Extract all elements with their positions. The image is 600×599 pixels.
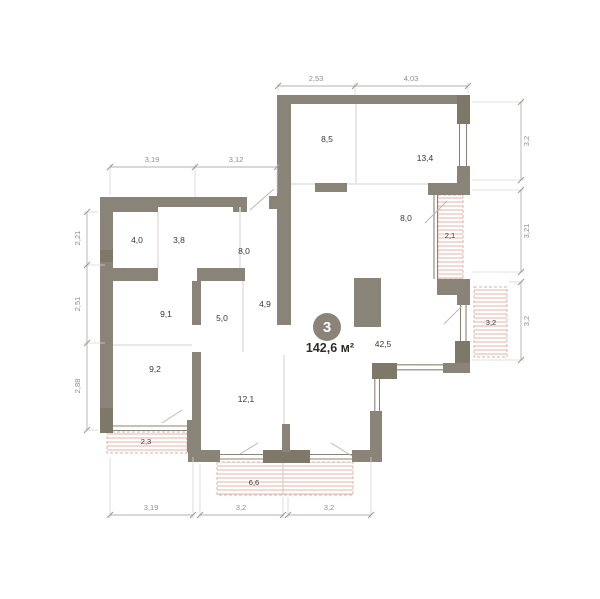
dim-top-1: 2,53 (309, 74, 324, 83)
dim-upperleft-1: 3,19 (145, 155, 160, 164)
dim-bottom-1: 3,19 (144, 503, 159, 512)
balcony-6-6-hatch (217, 462, 353, 495)
room-label-4-9: 4,9 (259, 299, 271, 309)
room-label-3-8: 3,8 (173, 235, 185, 245)
room-label-9-2: 9,2 (149, 364, 161, 374)
dim-upperleft-2: 3,12 (229, 155, 244, 164)
dim-bottom-2: 3,2 (236, 503, 246, 512)
dim-bottom-3: 3,2 (324, 503, 334, 512)
dim-right-1: 3,2 (522, 136, 531, 146)
floorplan-svg: 2,53 4,03 3,19 3,12 2,21 2,51 2,88 3,2 3… (0, 0, 600, 594)
balcony-label-2-1: 2,1 (445, 231, 455, 240)
room-label-9-1: 9,1 (160, 309, 172, 319)
room-label-8-5: 8,5 (321, 134, 333, 144)
room-label-5-0: 5,0 (216, 313, 228, 323)
apartment-badge: 3 142,6 м² (306, 313, 354, 355)
dim-left-2: 2,51 (73, 297, 82, 312)
dim-right-3: 3,2 (522, 316, 531, 326)
dim-top-2: 4,03 (404, 74, 419, 83)
dim-left-1: 2,21 (73, 231, 82, 246)
door-swings (162, 189, 462, 456)
room-count-number: 3 (323, 319, 331, 336)
room-label-12-1: 12,1 (238, 394, 255, 404)
room-label-8-0-hall: 8,0 (238, 246, 250, 256)
balcony-label-6-6: 6,6 (249, 478, 259, 487)
room-label-13-4: 13,4 (417, 153, 434, 163)
walls (100, 95, 470, 463)
floorplan-canvas: 2,53 4,03 3,19 3,12 2,21 2,51 2,88 3,2 3… (0, 0, 600, 594)
balcony-label-3-2: 3,2 (486, 318, 496, 327)
room-label-42-5: 42,5 (375, 339, 392, 349)
dim-right-2: 3,21 (522, 224, 531, 239)
balcony-label-2-3: 2,3 (141, 437, 151, 446)
total-area-label: 142,6 м² (306, 341, 354, 355)
room-label-4-0: 4,0 (131, 235, 143, 245)
room-label-8-0-right: 8,0 (400, 213, 412, 223)
dim-left-3: 2,88 (73, 379, 82, 394)
